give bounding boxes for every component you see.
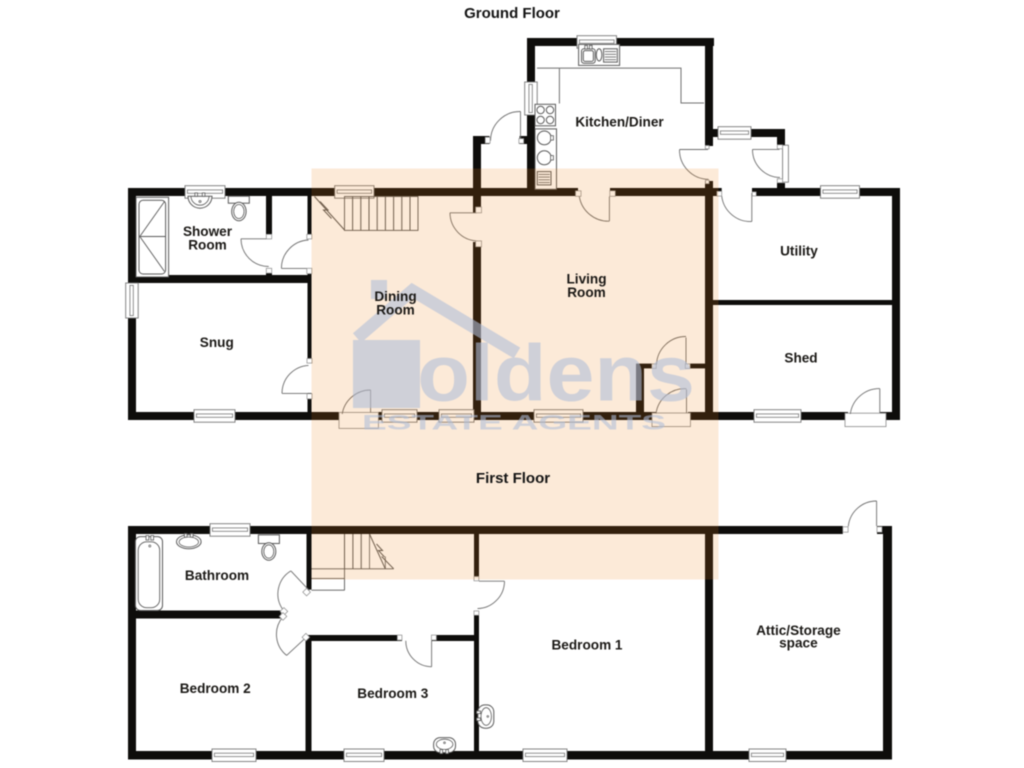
svg-text:LivingRoom: LivingRoom (566, 272, 606, 301)
svg-text:Shed: Shed (784, 351, 817, 366)
svg-text:Bedroom 2: Bedroom 2 (180, 681, 251, 696)
svg-text:Bedroom 3: Bedroom 3 (357, 686, 428, 701)
svg-text:Holdens: Holdens (355, 329, 695, 418)
svg-text:ShowerRoom: ShowerRoom (183, 224, 233, 253)
svg-text:DiningRoom: DiningRoom (374, 289, 416, 318)
svg-text:Ground Floor: Ground Floor (464, 5, 560, 22)
svg-text:Kitchen/Diner: Kitchen/Diner (575, 115, 664, 130)
svg-text:First Floor: First Floor (476, 470, 550, 487)
svg-text:Bathroom: Bathroom (185, 568, 249, 583)
svg-text:Snug: Snug (200, 335, 234, 350)
svg-text:Bedroom 1: Bedroom 1 (551, 638, 622, 653)
svg-text:ESTATE AGENTS: ESTATE AGENTS (362, 411, 666, 435)
svg-text:Utility: Utility (780, 244, 818, 259)
